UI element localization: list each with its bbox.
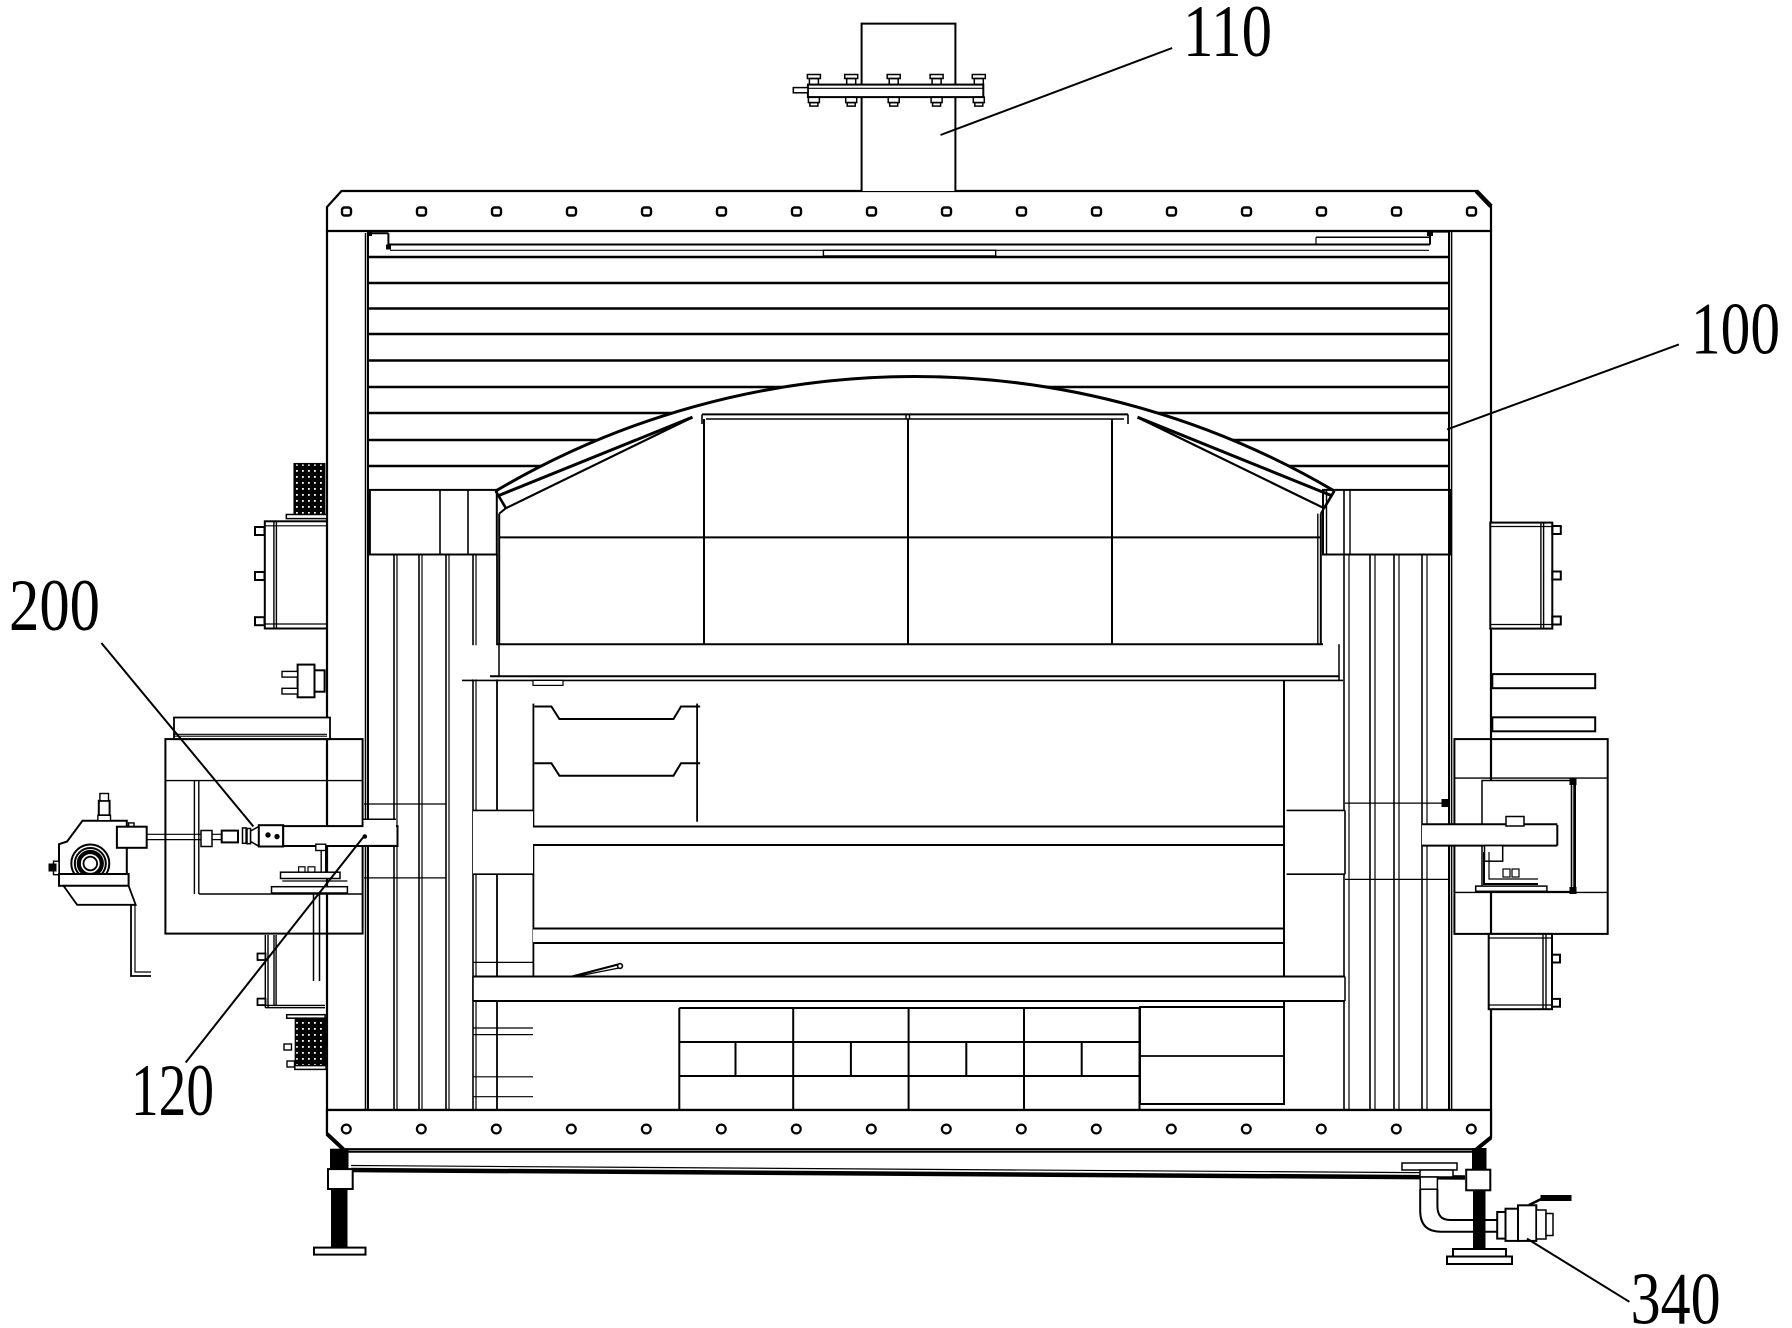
svg-text:100: 100 (1691, 289, 1780, 371)
svg-text:340: 340 (1631, 1259, 1721, 1328)
svg-text:110: 110 (1183, 0, 1272, 73)
svg-text:120: 120 (131, 1050, 214, 1132)
svg-text:200: 200 (9, 565, 100, 647)
